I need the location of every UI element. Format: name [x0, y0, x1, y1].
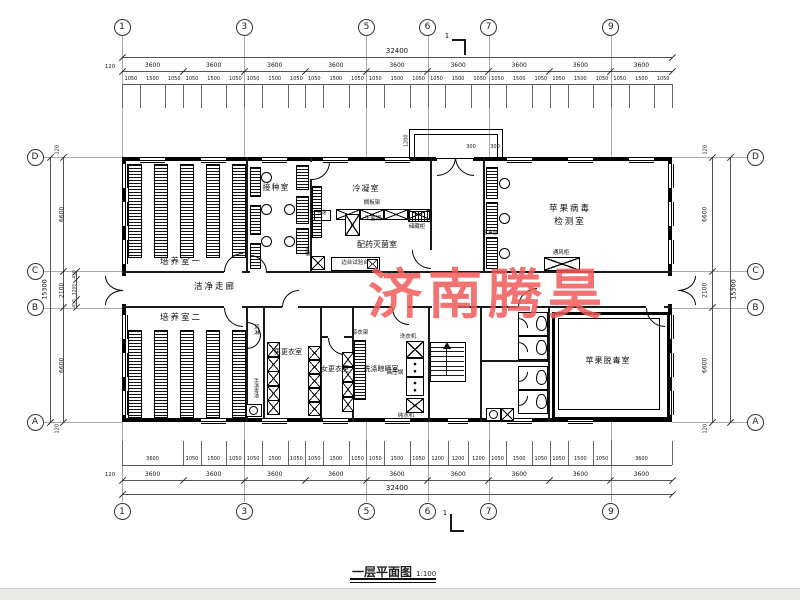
grid-bubble: 1	[114, 503, 131, 520]
dim-seg-right: 2100	[703, 270, 710, 310]
dim-detail-top: 1050	[304, 77, 324, 83]
door-arc	[105, 290, 123, 305]
grid-bubble: 7	[480, 503, 497, 520]
door-arc	[455, 157, 474, 176]
grid-bubble: 3	[236, 19, 253, 36]
interior-wall	[320, 336, 328, 338]
dim-total-top: 32400	[372, 48, 422, 56]
stair-arrow-line	[446, 348, 447, 376]
window	[262, 418, 287, 424]
dim-seg-right: 6600	[703, 194, 710, 234]
window	[668, 240, 674, 264]
equip-label-pass-window: 传递	[315, 212, 329, 217]
window	[201, 418, 226, 424]
culture-rack	[128, 330, 142, 418]
stool	[499, 213, 510, 224]
room-label-virus-test: 苹果病毒	[540, 205, 600, 214]
window-jamb	[305, 84, 306, 108]
dim-line	[50, 157, 51, 422]
culture-rack	[206, 330, 220, 418]
window	[668, 164, 674, 188]
door-arc	[437, 157, 456, 176]
door-arc	[678, 290, 696, 305]
footer-strip	[0, 588, 800, 600]
dim-line	[122, 57, 672, 58]
dim-detail-top: 1050	[365, 77, 385, 83]
room-label-mens-changing: 男更衣室	[264, 349, 312, 357]
grid-bubble: D	[747, 149, 764, 166]
window	[629, 157, 654, 163]
stool	[284, 236, 295, 247]
dim-bay-bottom: 3600	[504, 472, 534, 479]
dim-line	[122, 494, 672, 495]
dim-line	[122, 71, 672, 72]
room-label-corridor: 洁净走廊	[188, 283, 242, 292]
dim-detail-bottom: 1500	[264, 457, 286, 463]
locker	[308, 402, 321, 416]
hand-wash-basin	[249, 406, 258, 415]
grid-bubble: C	[27, 263, 44, 280]
dim-bay-bottom: 3600	[138, 472, 168, 479]
sink-unit	[311, 256, 325, 270]
stair-tread	[430, 351, 464, 352]
dim-bay-bottom: 3600	[260, 472, 290, 479]
window-jamb	[410, 84, 411, 108]
dim-bay-top: 3600	[504, 63, 534, 70]
dim-edge-top: 120	[101, 64, 119, 70]
clean-bench-unit	[486, 167, 498, 199]
window-jamb	[489, 84, 490, 108]
window-jamb	[384, 84, 385, 108]
stair-tread	[430, 370, 464, 371]
dim-edge-bottom: 120	[101, 472, 119, 478]
dim-detail-top: 1050	[488, 77, 508, 83]
dim-bay-top: 3600	[321, 63, 351, 70]
dim-detail-bottom: 1500	[386, 457, 408, 463]
dim-detail-top: 1500	[204, 77, 224, 83]
drawing-title: 一层平面图1:100	[352, 561, 436, 580]
room-label-culture2: 培养室二	[140, 314, 222, 323]
washer-unit	[406, 341, 424, 358]
stair-tread	[430, 375, 464, 376]
watermark: 济南腾昊	[368, 250, 608, 329]
dim-detail-bottom: 1200	[447, 457, 469, 463]
door-arc	[282, 290, 299, 307]
stool	[499, 178, 510, 189]
dim-detail-bottom: 1050	[181, 457, 203, 463]
dim-sub-left: 450	[74, 293, 79, 313]
dim-detail-top: 1500	[631, 77, 651, 83]
culture-rack	[128, 164, 142, 258]
grid-bubble: 1	[114, 19, 131, 36]
equip-label-sink: 水槽	[301, 246, 309, 256]
axis-line	[44, 271, 122, 272]
interior-wall	[344, 336, 352, 338]
dim-detail-bottom: 3600	[142, 457, 164, 463]
dim-detail-top: 1050	[243, 77, 263, 83]
section-mark-line	[450, 530, 464, 532]
autoclave-unit	[406, 377, 424, 396]
grid-bubble: 6	[419, 19, 436, 36]
window-jamb	[244, 84, 245, 108]
window-jamb	[323, 84, 324, 108]
window-jamb	[122, 84, 123, 108]
equip-label-shelf-rack: 搁板架	[356, 200, 388, 206]
dim-detail-top: 1050	[426, 77, 446, 83]
locker	[267, 357, 280, 372]
window-jamb	[611, 84, 612, 108]
culture-rack	[154, 330, 168, 418]
window-jamb	[428, 84, 429, 108]
dim-vestibule: 1200	[404, 131, 410, 151]
equip-label-washer: 洗衣机	[394, 334, 422, 340]
window-jamb	[165, 84, 166, 108]
grid-bubble: 7	[480, 19, 497, 36]
dim-detail-bottom: 1500	[325, 457, 347, 463]
dim-seg-left: 2100	[60, 270, 67, 310]
culture-rack	[180, 330, 194, 418]
work-bench	[296, 196, 309, 224]
door-arc	[105, 276, 123, 291]
dim-detail-top: 1500	[326, 77, 346, 83]
grid-bubble: A	[27, 414, 44, 431]
stool	[261, 236, 272, 247]
storage-cabinet-unit	[408, 211, 432, 222]
dim-detail-bottom: 1050	[548, 457, 570, 463]
dim-detail-top: 1500	[570, 77, 590, 83]
grid-bubble: 9	[602, 19, 619, 36]
window	[385, 157, 410, 163]
dim-bay-top: 3600	[565, 63, 595, 70]
door-arc	[678, 276, 696, 291]
room-label-virus-test: 检测室	[540, 218, 600, 227]
window-jamb	[366, 84, 367, 108]
window	[201, 157, 226, 163]
window-jamb	[532, 84, 533, 108]
title-scale: 1:100	[416, 570, 436, 578]
dim-detail-bottom: 1500	[569, 457, 591, 463]
door-arc	[224, 308, 243, 327]
window	[568, 157, 593, 163]
locker	[267, 400, 280, 415]
section-mark-top: 1	[443, 33, 451, 41]
dim-bay-top: 3600	[382, 63, 412, 70]
dim-seg-left: 6600	[60, 345, 67, 385]
culture-rack	[232, 330, 246, 418]
dim-line	[122, 84, 672, 85]
water-purifier-unit	[406, 398, 424, 413]
dim-detail-top: 1050	[121, 77, 141, 83]
locker	[267, 371, 280, 386]
window-jamb	[445, 84, 446, 108]
dim-seg-left: 6600	[60, 194, 67, 234]
dim-bay-bottom: 3600	[443, 472, 473, 479]
grid-bubble: B	[747, 299, 764, 316]
dim-detail-top: 1050	[182, 77, 202, 83]
grid-bubble: D	[27, 149, 44, 166]
toilet-fixture	[536, 394, 547, 409]
dim-edge-right: 120	[703, 141, 709, 159]
equip-label-sterilizer: 灭菌锅	[360, 216, 386, 222]
dim-bay-bottom: 3600	[626, 472, 656, 479]
dim-detail-bottom: 1050	[487, 457, 509, 463]
locker	[308, 388, 321, 402]
window-jamb	[568, 84, 569, 108]
dim-vestibule: 300	[464, 145, 478, 151]
dim-edge-right: 120	[703, 420, 709, 438]
dim-bay-top: 3600	[199, 63, 229, 70]
window-jamb	[262, 84, 263, 108]
dim-edge-left: 120	[55, 141, 61, 159]
window-jamb	[122, 441, 123, 465]
dim-bay-bottom: 3600	[199, 472, 229, 479]
window-jamb	[506, 84, 507, 108]
room-label-inoculation: 接种室	[252, 184, 300, 193]
dim-detail-top: 1050	[549, 77, 569, 83]
grid-bubble: 3	[236, 503, 253, 520]
window-jamb	[471, 84, 472, 108]
window-jamb	[288, 84, 289, 108]
dim-bay-top: 3600	[443, 63, 473, 70]
dim-vestibule: 300	[488, 145, 502, 151]
air-shower-arc	[247, 335, 261, 349]
window-jamb	[140, 84, 141, 108]
toilet-fixture	[536, 370, 547, 385]
section-mark-bottom: 1	[441, 510, 449, 518]
stool	[261, 204, 272, 215]
dim-detail-top: 1500	[143, 77, 163, 83]
dim-line	[122, 480, 672, 481]
window	[507, 157, 532, 163]
work-bench	[250, 205, 261, 235]
work-bench	[250, 243, 261, 269]
culture-rack	[180, 164, 194, 258]
window	[323, 418, 348, 424]
stool	[284, 204, 295, 215]
dim-detail-top: 1500	[387, 77, 407, 83]
window-jamb	[672, 84, 673, 108]
dim-line	[712, 157, 713, 422]
door-opening	[436, 150, 474, 158]
door-arc	[312, 162, 330, 180]
stair-tread	[430, 356, 464, 357]
dim-bay-bottom: 3600	[321, 472, 351, 479]
window-jamb	[349, 84, 350, 108]
culture-rack	[154, 164, 168, 258]
dim-detail-bottom: 1200	[427, 457, 449, 463]
grid-bubble: 9	[602, 503, 619, 520]
dim-detail-bottom: 3600	[630, 457, 652, 463]
stair-tread	[430, 361, 464, 362]
sink-unit	[501, 408, 514, 421]
equip-label-water-purifier: 纯水机	[392, 413, 420, 419]
grid-bubble: 5	[358, 503, 375, 520]
dim-detail-bottom: 1050	[303, 457, 325, 463]
stair-arrow-head	[443, 342, 451, 349]
equip-label-storage: 储藏柜	[402, 224, 432, 230]
locker	[342, 397, 354, 412]
axis-line	[44, 308, 122, 309]
window-jamb	[550, 84, 551, 108]
locker	[342, 382, 354, 397]
dim-total-bottom: 32400	[372, 485, 422, 493]
dim-bay-bottom: 3600	[565, 472, 595, 479]
title-text: 一层平面图	[352, 565, 412, 579]
dim-detail-top: 1500	[448, 77, 468, 83]
interior-wall	[480, 360, 548, 362]
room-label-condensation: 冷凝室	[342, 185, 390, 194]
window	[668, 202, 674, 226]
room-label-medicine: 配药灭菌室	[348, 241, 406, 250]
window-jamb	[183, 84, 184, 108]
room-label-culture1: 培养室一	[140, 258, 222, 267]
window-jamb	[672, 441, 673, 465]
window-jamb	[593, 84, 594, 108]
interior-wall	[246, 157, 248, 271]
equip-label-air-shower: 风淋	[250, 324, 258, 335]
locker	[308, 374, 321, 388]
culture-rack	[232, 164, 246, 258]
stair-tread	[430, 366, 464, 367]
dim-detail-top: 1500	[265, 77, 285, 83]
title-underline-thin	[350, 582, 436, 583]
dim-detail-bottom: 1050	[364, 457, 386, 463]
section-mark-line	[464, 39, 466, 55]
toilet-fixture	[536, 340, 547, 355]
grid-bubble: 6	[419, 503, 436, 520]
dim-bay-top: 3600	[626, 63, 656, 70]
dim-bay-bottom: 3600	[382, 472, 412, 479]
window-jamb	[654, 84, 655, 108]
grid-bubble: C	[747, 263, 764, 280]
dim-detail-top: 1500	[509, 77, 529, 83]
equip-label-clean-bench: 超净台	[480, 231, 500, 237]
dim-bay-top: 3600	[260, 63, 290, 70]
window	[448, 418, 468, 424]
window-jamb	[201, 84, 202, 108]
dim-bay-top: 3600	[138, 63, 168, 70]
window-jamb	[629, 84, 630, 108]
door-opening	[668, 276, 672, 304]
equip-label-hand-wash: 手消毒池	[250, 378, 258, 398]
window	[262, 157, 287, 163]
bench-unit	[384, 209, 408, 220]
grid-bubble: A	[747, 414, 764, 431]
dim-edge-left: 120	[55, 420, 61, 438]
dim-detail-top: 1050	[610, 77, 630, 83]
room-label-virus-free: 苹果脱毒室	[568, 357, 648, 366]
dim-seg-right: 6600	[703, 345, 710, 385]
sink-basin	[489, 410, 498, 419]
dim-total-right: 15300	[730, 270, 737, 310]
grid-bubble: B	[27, 299, 44, 316]
sterilizer-unit	[345, 214, 360, 236]
interior-wall	[263, 308, 265, 422]
dim-detail-bottom: 1500	[508, 457, 530, 463]
culture-rack	[206, 164, 220, 258]
grid-bubble: 5	[358, 19, 375, 36]
locker	[267, 386, 280, 401]
window-jamb	[226, 84, 227, 108]
dim-detail-bottom: 1500	[203, 457, 225, 463]
dim-detail-bottom: 1050	[242, 457, 264, 463]
stool	[261, 172, 272, 183]
dim-detail-top: 1050	[653, 77, 673, 83]
dim-line	[122, 465, 672, 466]
dim-detail-bottom: 1050	[591, 457, 613, 463]
window	[140, 157, 165, 163]
equip-label-autoclave: 高压锅	[385, 370, 405, 376]
floorplan-sheet: 3240036003600360036003600360036003600360…	[0, 0, 800, 600]
equip-label-drying-rack: 晾衣架	[346, 330, 374, 336]
